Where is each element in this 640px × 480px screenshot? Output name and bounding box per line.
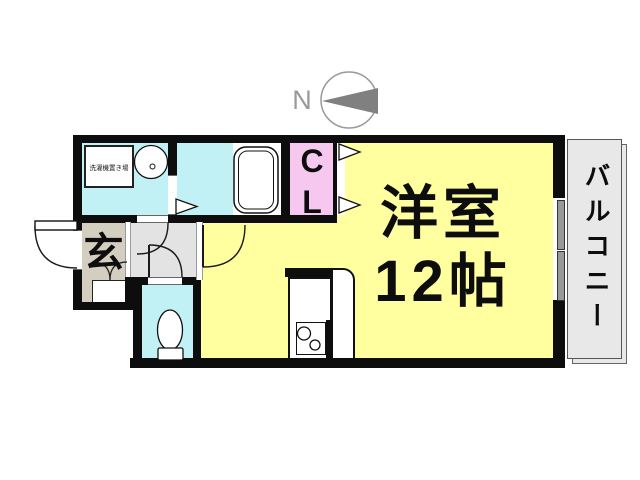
- entrance-label: 玄: [82, 227, 125, 279]
- main-room-size: 12帖: [338, 248, 548, 316]
- wall-right-lower: [553, 300, 565, 360]
- laundry-label: 洗濯機置き場: [90, 162, 129, 172]
- wall-kitchen-cap: [285, 268, 331, 277]
- wall-washroom-bath-divider: [168, 143, 177, 175]
- room-hallway: [131, 222, 196, 277]
- wall-top: [73, 135, 565, 143]
- compass-north-label: N: [288, 85, 316, 116]
- entrance-door-leaf: [35, 221, 77, 230]
- wall-toilet-left: [133, 277, 142, 362]
- wall-kitchen-stub: [326, 320, 333, 360]
- toilet-door-opening: [148, 277, 182, 285]
- floor-plan: バルコニー 洗濯機置き場: [0, 0, 640, 480]
- washing-machine-area: 洗濯機置き場: [84, 145, 134, 188]
- main-room-label: 洋室 12帖: [338, 180, 548, 316]
- bathroom-door-opening: [168, 175, 177, 215]
- entrance-hall-threshold: [125, 222, 131, 277]
- entrance-door-opening: [73, 230, 82, 270]
- sliding-window-panel: [557, 200, 565, 250]
- bathtub-zone: [233, 143, 281, 215]
- shoe-cabinet: [92, 280, 129, 304]
- sliding-window-panel: [557, 251, 565, 301]
- main-room-name: 洋室: [338, 180, 548, 248]
- main-door-opening: [196, 222, 203, 280]
- closet-label: CL: [289, 143, 334, 215]
- stove: [296, 322, 326, 355]
- room-toilet: [142, 285, 193, 358]
- balcony-label: バルコニー: [568, 140, 621, 358]
- wall-toilet-right: [193, 277, 201, 362]
- compass-circle: [321, 72, 377, 128]
- entrance-door-arc: [35, 226, 77, 268]
- room-balcony: バルコニー: [567, 139, 622, 359]
- washroom-door-opening: [137, 215, 168, 223]
- wall-right-upper: [553, 135, 565, 198]
- compass-north-arrow-icon: [322, 88, 378, 114]
